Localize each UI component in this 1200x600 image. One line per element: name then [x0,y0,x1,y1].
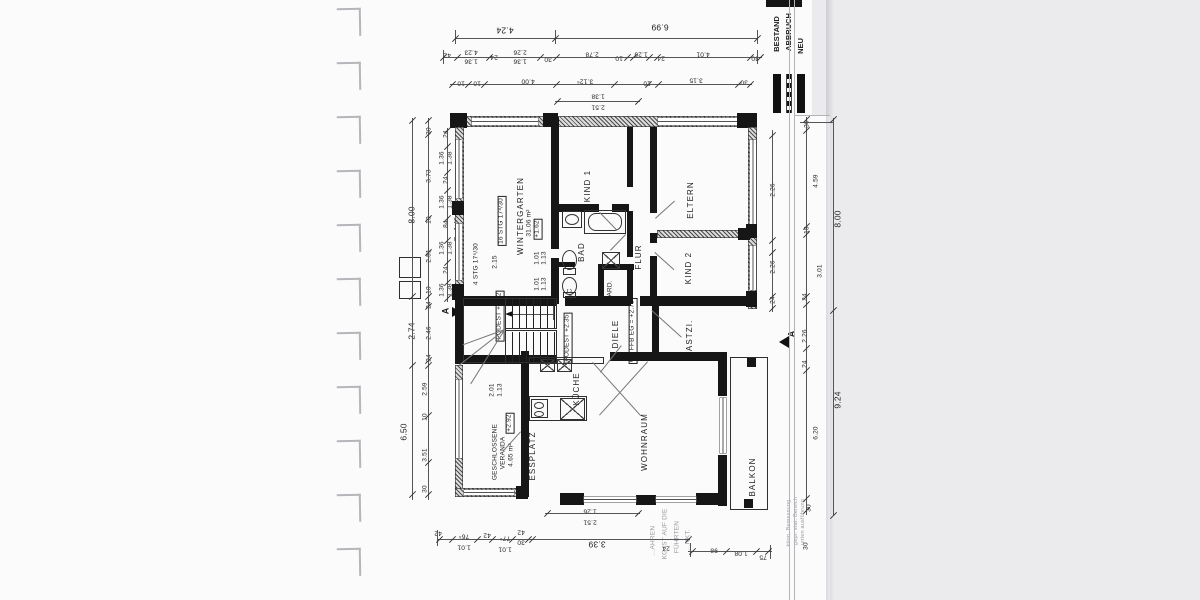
wall-segment [627,211,633,257]
dims-right-label: 4.59 [814,174,821,187]
wall-segment [747,358,756,367]
dims-bottom-label: 1.01 [498,545,511,552]
dimension-line [553,306,554,320]
binding-mark [337,62,361,90]
fixture [534,402,544,409]
rooms-label: ELTERN [687,181,695,219]
dims-top-label: 2.51 [591,103,604,110]
wall-segment [563,268,576,275]
dims-left-label: 1.36 [440,151,447,164]
dims-left-label: 1.13 [542,251,549,264]
dims-top-label: 3.12⁵ [577,77,593,84]
dimension-line [428,118,429,500]
dims-top-label: 3.15 [689,76,702,83]
fixture [750,140,756,224]
door-swing-line [599,361,648,415]
wall-segment [399,257,421,278]
page-fold-line [789,0,790,600]
fixture [562,250,577,270]
dims-bottom-label: 1.01 [457,543,470,550]
dims-top-label: 1.38 [591,92,604,99]
dimension-line [447,128,448,302]
wall-segment [737,113,757,128]
dims-top-label: 30 [544,55,552,62]
page-fold-line [794,0,795,600]
fixture [602,252,620,269]
dims-left-label: 2.15 [493,255,500,268]
fixture [588,213,622,231]
binding-mark [337,548,361,576]
dims-left-label: 1.36 [440,195,447,208]
rooms-label: FLUR [635,244,643,269]
rooms-label: ESSPLATZ [529,431,537,480]
dims-right-label: 9.24 [834,391,843,408]
wall-segment [718,352,727,396]
wall-segment [551,117,559,249]
wall-segment [610,352,724,361]
wall-segment [627,127,633,187]
fixture [658,118,738,125]
notes-label: FÜHRTEN [675,521,682,553]
dims-bottom-label: 76⁵ [459,532,470,539]
wall-segment [640,296,755,306]
scan-line [795,115,830,116]
dimension-line [412,118,413,500]
legend-label-neu: NEU [797,38,805,54]
binding-mark [337,8,361,36]
dims-bottom-label: 42 [517,528,525,535]
fixture [565,214,579,225]
levels-label: +2.92 [506,412,515,433]
fixture [534,411,544,417]
dimension-line [455,38,757,39]
stair-treads [505,299,557,328]
wall-segment [730,357,768,510]
rooms-label: BAD [578,242,586,262]
rooms-label: DIELE [612,320,620,349]
rooms-label: KIND 2 [685,252,693,284]
stairs-label: 4 STG 17⁵/30 [474,243,481,285]
levels-label: +1.62 [534,218,543,239]
section-marker-a-right [779,336,789,348]
binding-mark [337,494,361,522]
dimension-line [555,101,640,102]
fixture [720,398,726,453]
dims-top-label: 6.99 [651,23,668,32]
binding-mark [337,278,361,306]
dims-bottom-label: 3.39 [588,540,605,549]
wall-segment [560,493,584,505]
markers-label: A [441,308,450,315]
binding-mark [337,440,361,468]
rooms-label: KIND 1 [584,170,592,202]
dims-bottom-label: 42 [483,531,491,538]
door-swing-line [655,201,675,219]
fixture [560,398,585,420]
dims-bottom-label: 2.51 [583,518,596,525]
dims-left-label: 6.50 [400,423,409,440]
dims-top-label: 4.01 [696,50,709,57]
dimension-line [688,551,772,552]
notes-label: …AHREN [651,526,658,556]
dims-bottom-label: 42 [434,529,442,536]
dims-left-label: 1.13 [542,277,549,290]
fixture [472,118,538,125]
scanned-floor-plan-page: BESTAND ABBRUCH NEU KIND 1ELTERNKIND 2FL… [0,0,1200,600]
stair-treads [505,332,557,362]
dimension-line [443,57,762,58]
fixture [464,490,514,495]
binding-mark [337,224,361,252]
wall-segment [636,495,656,505]
wall-segment [650,127,657,213]
dims-bottom-label: 1.08 [734,549,747,556]
dims-left-label: 1.38 [448,241,455,254]
wall-segment [521,351,529,497]
dimension-line [757,50,758,64]
stairs-label: 16 STG 17⁸/30 [498,196,507,246]
fixture [456,224,462,280]
door-swing-line [592,362,641,416]
dims-left-label: 1.13 [498,383,505,396]
dims-top-label: 4.23 [464,48,477,55]
fixture [656,497,696,502]
fixture [456,380,462,458]
scanner-background-right [830,0,1200,600]
dimension-line [450,84,752,85]
notes-label: ktion. Bemessung [787,500,793,547]
legend-bar-neu [797,74,805,113]
dims-right-label: 3.01 [818,264,825,277]
dims-right-label: 8.00 [834,210,843,227]
fixture [584,497,636,502]
dimension-line [833,118,834,515]
fixture [456,140,462,198]
dimension-line [690,543,691,557]
wall-segment [563,292,576,298]
rooms-label: WINTERGARTEN [517,177,525,255]
notes-label: KG IST AUF DIE [663,508,670,559]
door-swing-line [610,234,626,251]
fixture [750,246,756,290]
scan-artifact-bar [766,0,802,7]
rooms-label: GESCHLOSSENE [493,424,500,480]
rooms-label: 4.65 m² [509,443,516,466]
dims-right-label: 6.20 [814,426,821,439]
dimension-line [437,530,438,546]
dimension-line [545,513,640,514]
binding-mark [337,332,361,360]
dims-left-label: 2.01 [490,383,497,396]
wall-segment [657,230,748,238]
binding-mark [337,116,361,144]
rooms-label: 31.06 m² [527,209,534,236]
dim-tick [635,510,642,517]
binding-mark [337,170,361,198]
wall-segment [452,201,464,215]
wall-segment [450,113,467,128]
binding-mark [337,386,361,414]
door-swing-line [654,252,674,270]
rooms-label: WOHNRAUM [641,413,649,471]
wall-segment [696,493,726,505]
dims-top-label: 4.24 [496,26,513,35]
wall-segment [516,486,528,499]
wall-segment [744,499,753,508]
levels-label: PODEST +2.35 [564,312,573,363]
fixture [557,359,572,372]
dims-top-label: 2.26 [513,48,526,55]
dimension-line [772,130,773,312]
rooms-label: VERANDA [501,437,508,470]
dims-top-label: 4.00 [521,77,534,84]
wall-segment [738,228,750,240]
dim-tick [747,81,754,88]
dim-tick [635,98,642,105]
dims-left-label: 1.38 [448,151,455,164]
legend-bar-bestand [773,74,781,113]
dims-top-label: 2.78 [585,50,598,57]
legend-label-bestand: BESTAND [773,16,781,52]
wall-segment [650,233,657,243]
dimension-line [806,117,807,515]
